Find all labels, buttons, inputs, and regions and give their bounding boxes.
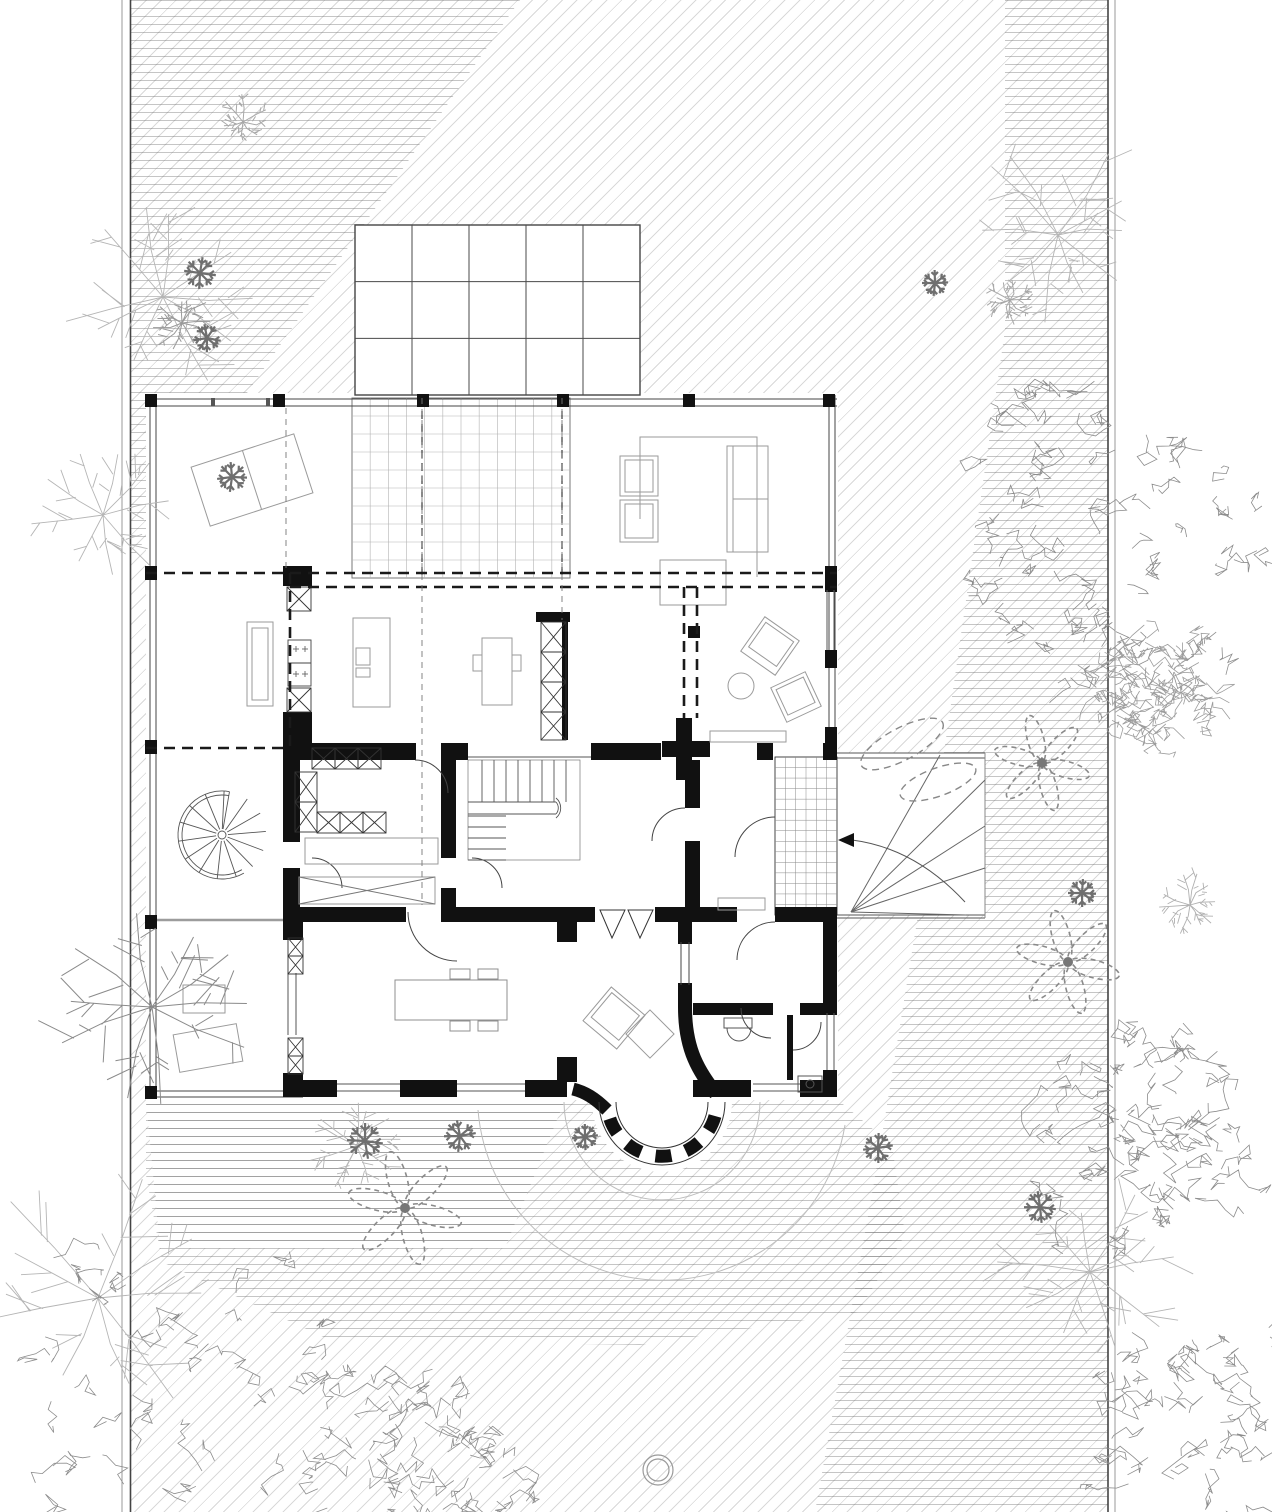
entry-porch-grid: [775, 757, 837, 915]
shrub-star-icon: [1068, 879, 1096, 907]
shrub-star-icon: [863, 1133, 893, 1163]
flower-plant-icon: [1060, 961, 1091, 1016]
flower-plant-icon: [396, 1207, 429, 1267]
tree-canopy-icon: [0, 1238, 402, 1512]
flower-plant-icon: [1046, 908, 1077, 963]
tree-branch-icon: [0, 1174, 209, 1398]
manhole-cover: [643, 1455, 673, 1485]
pergola-grid: [355, 225, 640, 395]
tree-branch-icon: [1159, 867, 1215, 933]
plan-drawing: [0, 0, 1272, 1512]
tree-canopy-icon: [295, 1369, 539, 1512]
flower-plant-icon: [346, 1184, 406, 1217]
shrub-star-icon: [922, 270, 948, 296]
shrub-star-icon: [1024, 1191, 1056, 1223]
shrub-star-icon: [347, 1123, 383, 1159]
tree-canopy-icon: [1078, 621, 1235, 758]
tree-branch-icon: [986, 280, 1032, 325]
flower-plant-icon: [1014, 940, 1069, 971]
flower-plant-icon: [404, 1199, 464, 1232]
tree-canopy-icon: [1022, 1020, 1271, 1259]
roof-deck-grid: [352, 398, 570, 578]
flower-plant-icon: [1041, 755, 1092, 783]
tree-branch-icon: [221, 94, 266, 141]
flower-plant-icon: [1067, 954, 1122, 985]
shrub-star-icon: [444, 1120, 476, 1152]
shrub-star-icon: [193, 324, 221, 352]
flower-plant-icon: [993, 742, 1044, 770]
floor-plan-canvas: [0, 0, 1272, 1512]
shrub-star-icon: [184, 257, 216, 289]
shrub-star-icon: [572, 1124, 598, 1150]
flower-plant-icon: [1021, 714, 1049, 765]
tree-branch-icon: [66, 207, 253, 380]
flower-plant-icon: [1034, 762, 1062, 813]
tree-branch-icon: [983, 1178, 1193, 1352]
flower-plant-icon: [381, 1149, 414, 1209]
shrub-star-icon: [217, 462, 247, 492]
